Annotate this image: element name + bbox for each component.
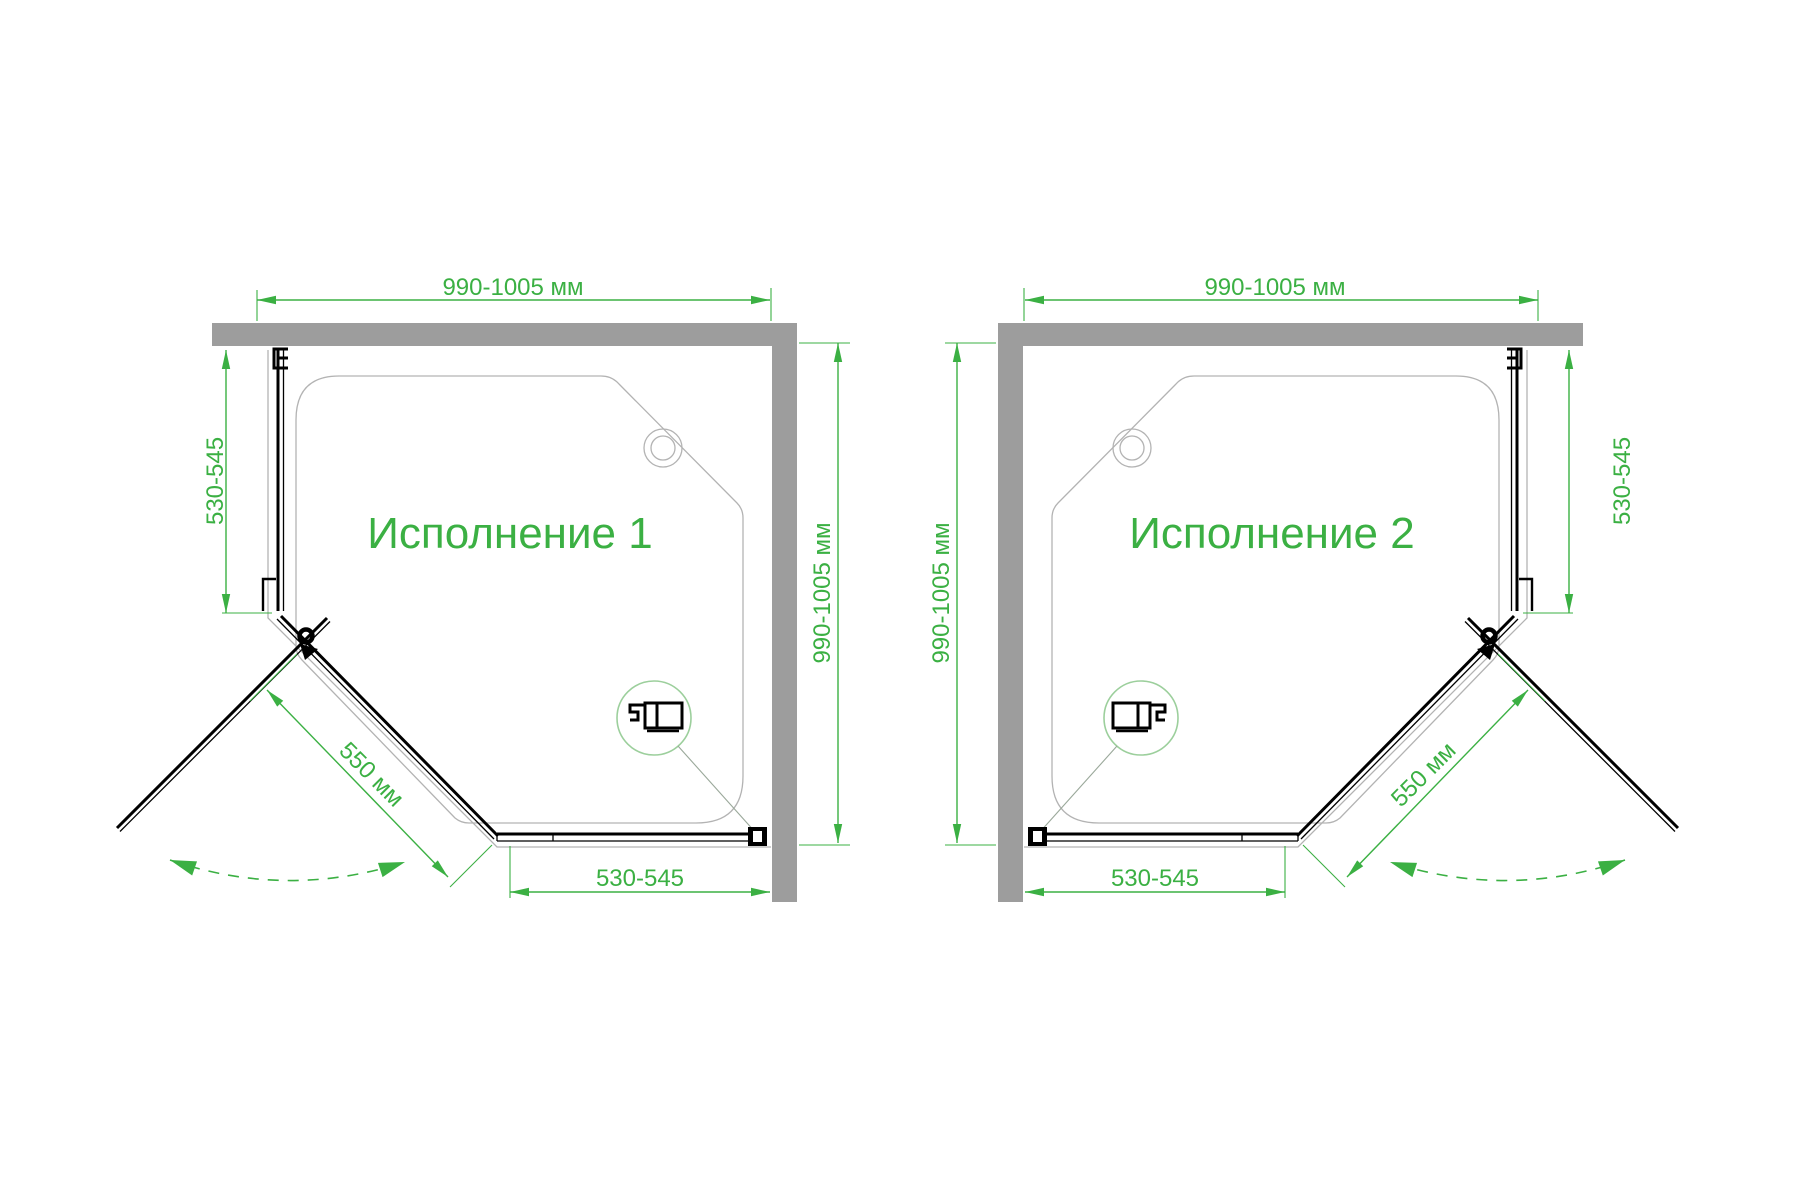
diagram-title-2: Исполнение 2: [1129, 509, 1414, 558]
dim-side-panel-label-2: 530-545: [1609, 437, 1636, 525]
dim-bottom-panel-label-1: 530-545: [596, 865, 684, 892]
diagram-variant-1: 990-1005 мм 530-545 990-1005 мм 530-545 …: [117, 274, 850, 902]
shower-enclosure-drawing: 990-1005 мм 530-545 990-1005 мм 530-545 …: [0, 0, 1800, 1200]
dim-depth-label-1: 990-1005 мм: [809, 522, 836, 663]
dim-top-width-label-2: 990-1005 мм: [1204, 274, 1345, 301]
dim-side-panel-label-1: 530-545: [202, 437, 229, 525]
enclosure-variant-1: [117, 288, 850, 902]
dim-depth-label-2: 990-1005 мм: [928, 522, 955, 663]
enclosure-variant-2: [945, 288, 1678, 902]
dim-top-width-label-1: 990-1005 мм: [442, 274, 583, 301]
dim-bottom-panel-label-2: 530-545: [1111, 865, 1199, 892]
technical-drawing-canvas: 990-1005 мм 530-545 990-1005 мм 530-545 …: [0, 0, 1800, 1200]
diagram-variant-2: 990-1005 мм 990-1005 мм 530-545 530-545 …: [928, 274, 1678, 902]
diagram-title-1: Исполнение 1: [367, 509, 652, 558]
